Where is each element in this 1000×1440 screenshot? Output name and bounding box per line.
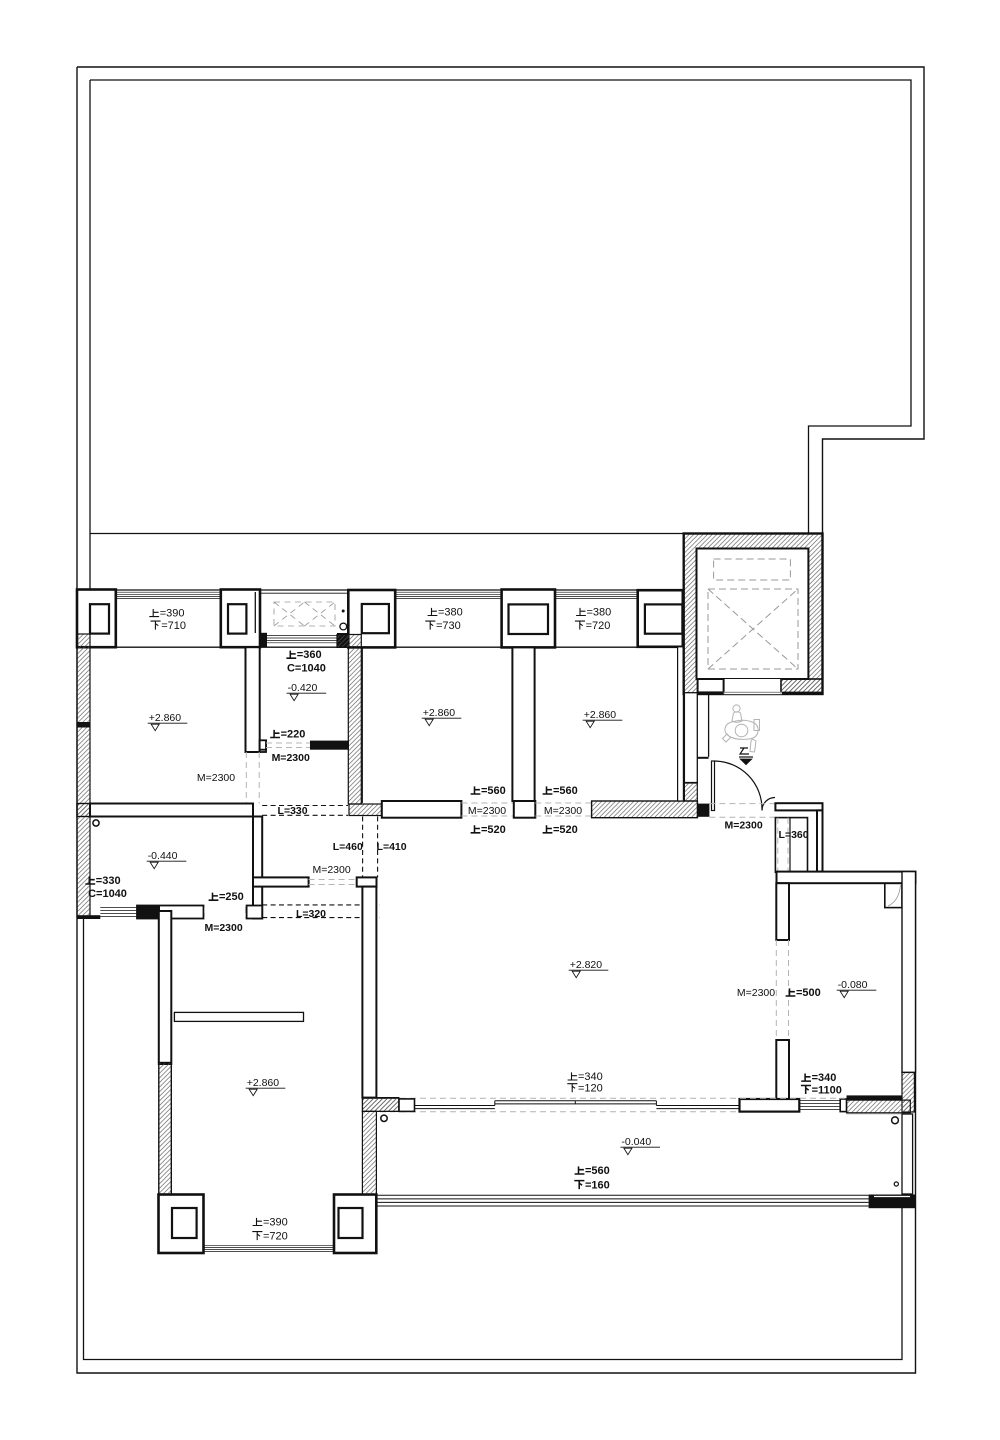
svg-text:=120: =120 xyxy=(578,1083,603,1095)
svg-text:M=2300: M=2300 xyxy=(272,752,310,764)
svg-text:M=2300: M=2300 xyxy=(737,987,775,999)
svg-text:L=410: L=410 xyxy=(377,841,407,853)
svg-text:=340: =340 xyxy=(578,1071,603,1083)
svg-text:L=360: L=360 xyxy=(779,829,809,841)
svg-text:-0.040: -0.040 xyxy=(621,1136,651,1148)
svg-text:=710: =710 xyxy=(161,620,186,632)
svg-text:M=2300: M=2300 xyxy=(468,805,506,817)
svg-text:=390: =390 xyxy=(160,608,185,620)
svg-text:=330: =330 xyxy=(96,875,121,887)
svg-text:+2.820: +2.820 xyxy=(570,959,603,971)
svg-text:=390: =390 xyxy=(263,1217,288,1229)
svg-text:=500: =500 xyxy=(796,987,821,999)
svg-text:+2.860: +2.860 xyxy=(584,709,617,721)
svg-text:=250: =250 xyxy=(219,891,244,903)
svg-text:L=460: L=460 xyxy=(333,841,363,853)
svg-text:C=1040: C=1040 xyxy=(88,888,127,900)
svg-text:=560: =560 xyxy=(553,785,578,797)
svg-text:M=2300: M=2300 xyxy=(544,805,582,817)
svg-text:=220: =220 xyxy=(281,729,306,741)
svg-text:L=330: L=330 xyxy=(278,805,308,817)
svg-text:M=2300: M=2300 xyxy=(312,864,350,876)
svg-text:=520: =520 xyxy=(553,824,578,836)
svg-text:-0.080: -0.080 xyxy=(838,979,868,991)
svg-text:L=320: L=320 xyxy=(296,908,326,920)
svg-text:=730: =730 xyxy=(436,620,461,632)
svg-text:=160: =160 xyxy=(585,1179,610,1191)
svg-text:+2.860: +2.860 xyxy=(423,707,456,719)
svg-text:=380: =380 xyxy=(438,607,463,619)
svg-text:=1100: =1100 xyxy=(812,1084,842,1096)
svg-text:=360: =360 xyxy=(297,649,322,661)
svg-text:+2.860: +2.860 xyxy=(149,712,182,724)
svg-text:=560: =560 xyxy=(585,1165,610,1177)
svg-text:=720: =720 xyxy=(263,1230,288,1242)
svg-text:-0.440: -0.440 xyxy=(148,850,178,862)
svg-text:=560: =560 xyxy=(481,785,506,797)
svg-text:-0.420: -0.420 xyxy=(288,682,318,694)
svg-text:=720: =720 xyxy=(586,620,611,632)
svg-text:=520: =520 xyxy=(481,824,506,836)
svg-text:+2.860: +2.860 xyxy=(247,1077,280,1089)
svg-text:M=2300: M=2300 xyxy=(197,772,235,784)
svg-text:C=1040: C=1040 xyxy=(287,662,326,674)
svg-text:M=2300: M=2300 xyxy=(204,922,242,934)
svg-text:=380: =380 xyxy=(587,607,612,619)
svg-text:=340: =340 xyxy=(812,1072,837,1084)
svg-text:M=2300: M=2300 xyxy=(724,819,762,831)
